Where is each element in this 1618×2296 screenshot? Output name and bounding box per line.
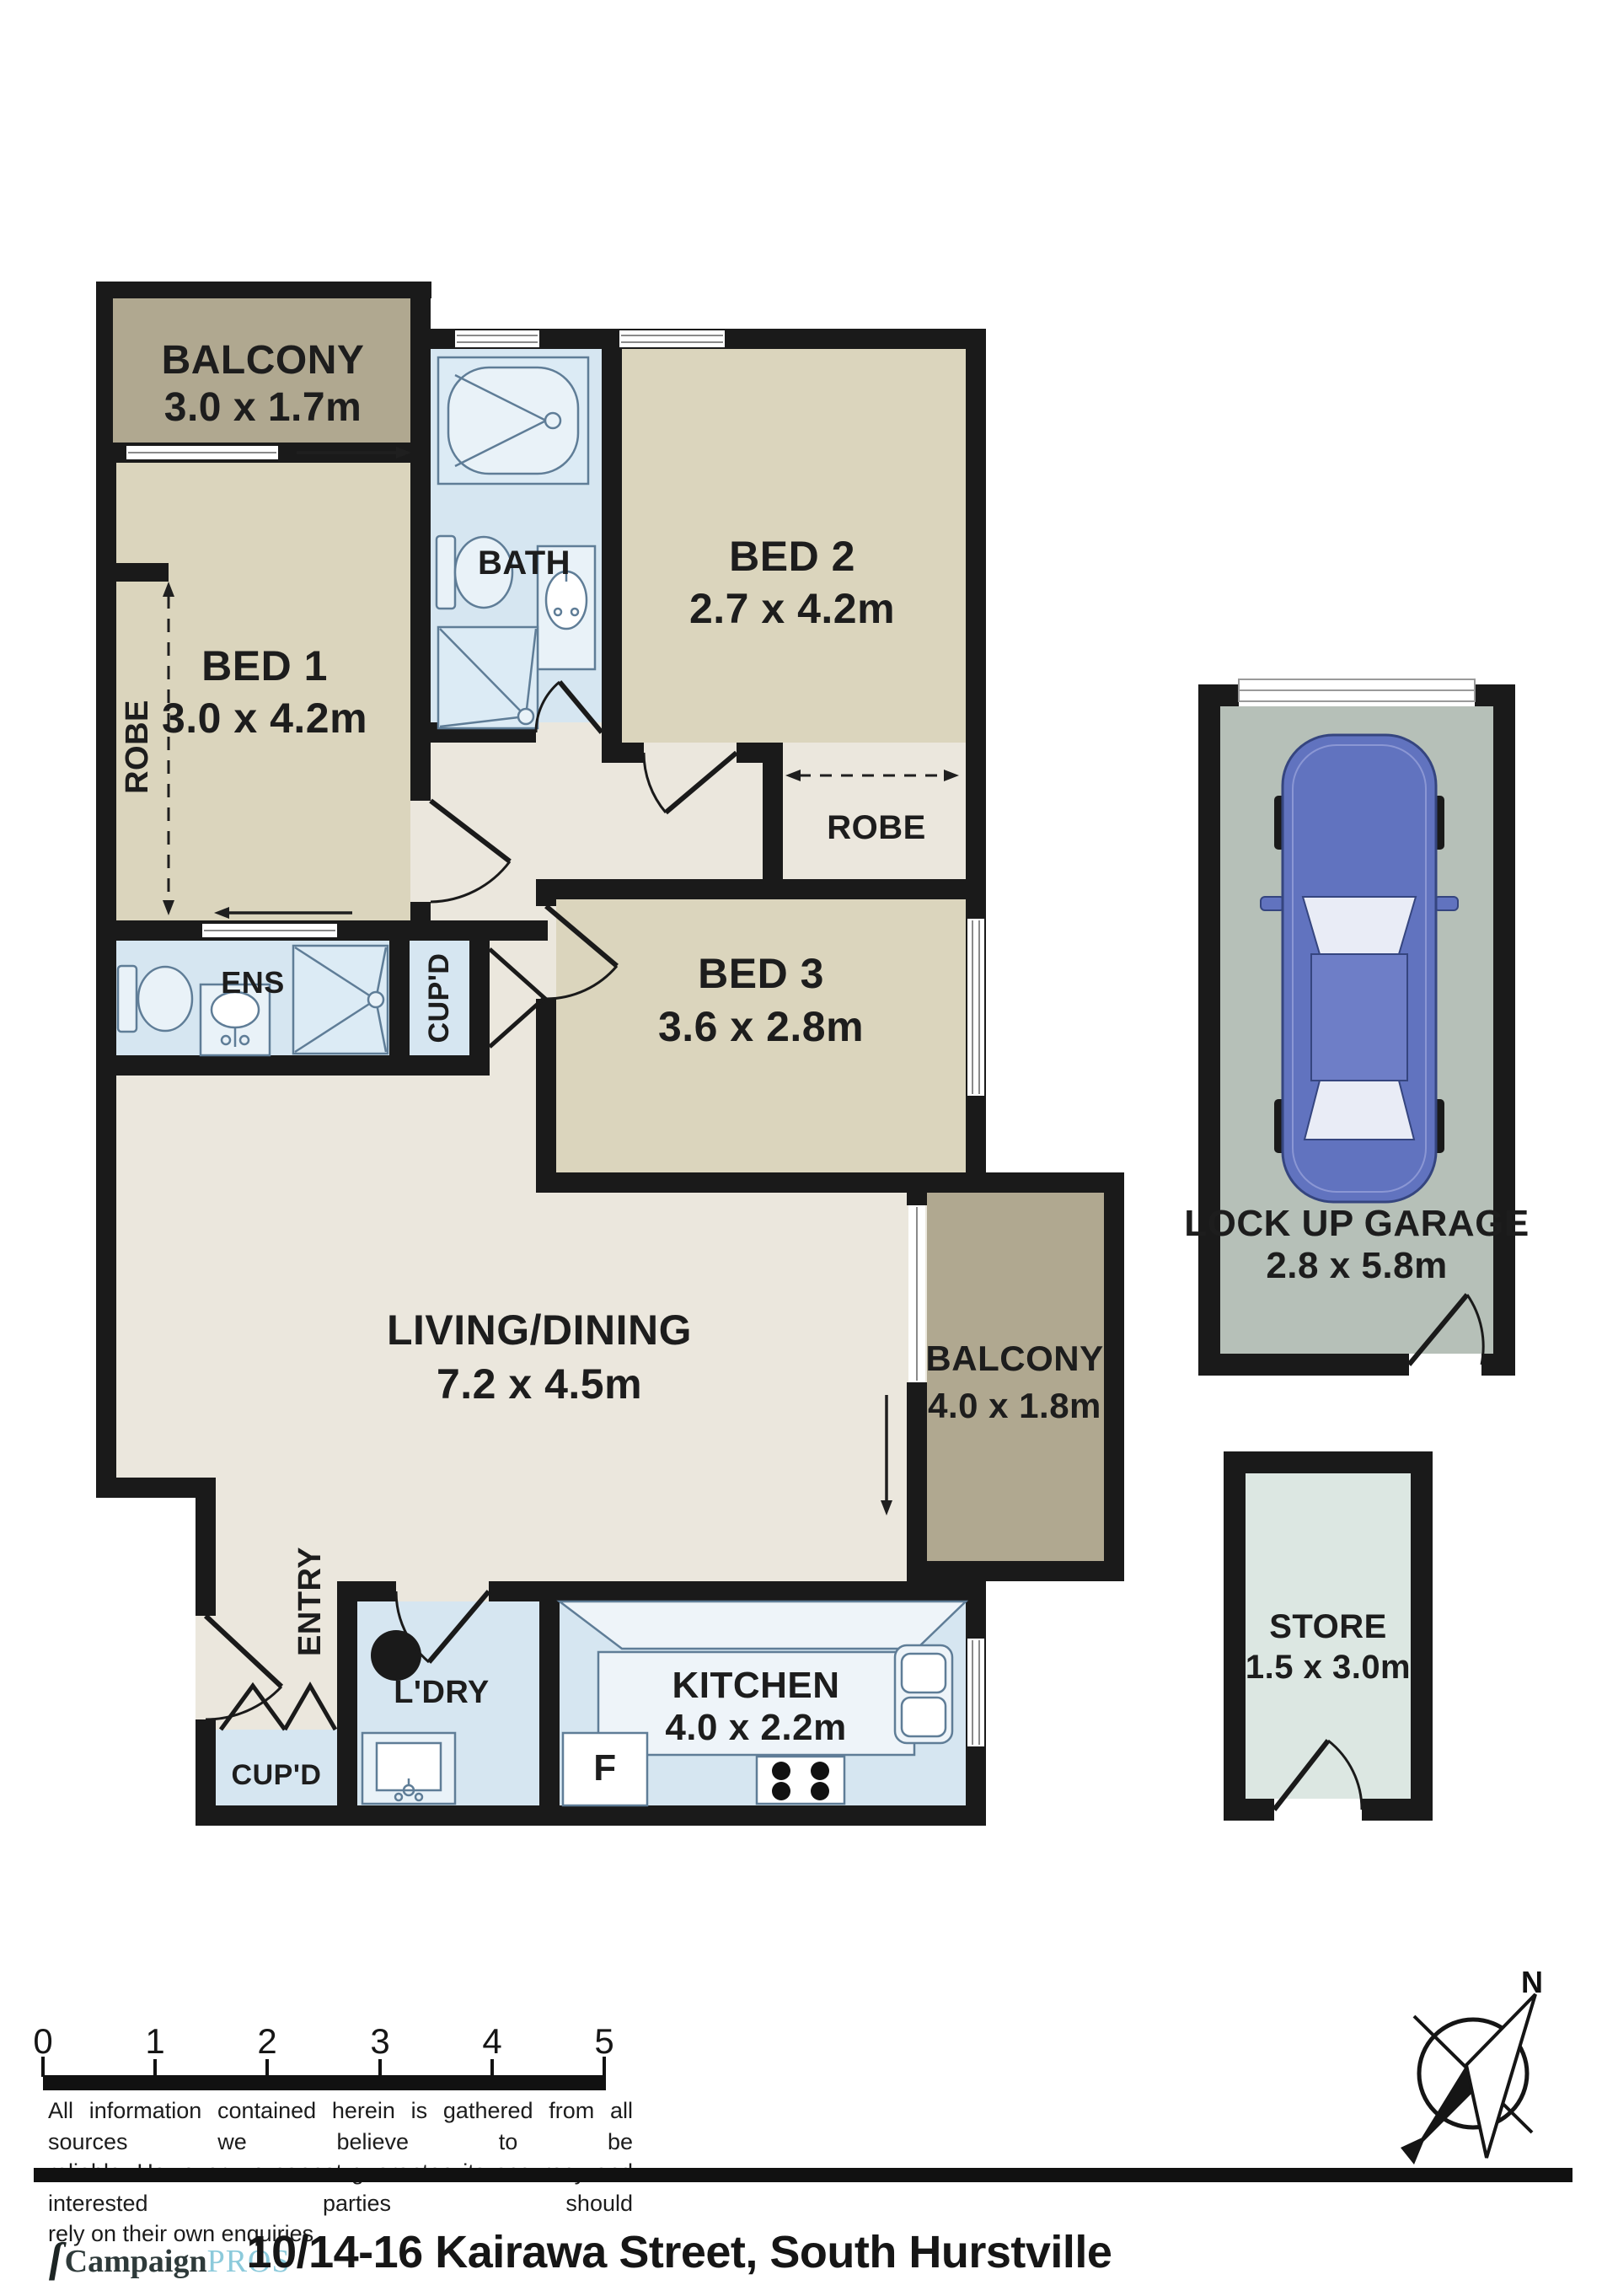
shower-icon [438, 627, 538, 728]
balcony2-label: BALCONY [925, 1341, 1103, 1376]
compass-north-label: N [1521, 1965, 1543, 2000]
logo-icon: ſ [49, 2234, 63, 2281]
bathtub-icon [438, 357, 588, 484]
scale-bar [41, 2057, 606, 2090]
garage-label: LOCK UP GARAGE [1184, 1205, 1530, 1242]
bed2-label: BED 2 [729, 535, 855, 577]
living-dining-dims: 7.2 x 4.5m [437, 1363, 642, 1405]
laundry-label: L'DRY [394, 1676, 490, 1709]
disclaimer-line: reliable. However we cannot guarantee it… [48, 2157, 633, 2218]
scale-0: 0 [33, 2021, 52, 2062]
balcony1-dims: 3.0 x 1.7m [164, 388, 362, 428]
floorplan-page: BALCONY 3.0 x 1.7m BED 1 3.0 x 4.2m ROBE… [0, 0, 1618, 2296]
garage-dims: 2.8 x 5.8m [1266, 1247, 1447, 1285]
bed2-dims: 2.7 x 4.2m [689, 587, 895, 630]
ens-shower-icon [293, 946, 388, 1054]
bed1-dims: 3.0 x 4.2m [162, 697, 367, 739]
garage-door [1239, 679, 1475, 701]
ens-toilet-icon [118, 966, 192, 1032]
scale-4: 4 [482, 2021, 501, 2062]
store-label: STORE [1269, 1610, 1387, 1644]
fridge-label: F [593, 1750, 616, 1787]
laundry-tub-icon [362, 1733, 455, 1804]
footer-divider [34, 2168, 1572, 2182]
cooktop-icon [757, 1757, 844, 1804]
entry-label: ENTRY [294, 1547, 326, 1656]
bed1-label: BED 1 [201, 645, 328, 687]
ensuite-label: ENS [221, 968, 285, 998]
bed3-dims: 3.6 x 2.8m [658, 1006, 864, 1048]
scale-3: 3 [370, 2021, 389, 2062]
address-title: 10/14-16 Kairawa Street, South Hurstvill… [247, 2226, 1112, 2278]
balcony1-label: BALCONY [162, 341, 365, 381]
kitchen-counter [560, 1601, 966, 1649]
bed3-label: BED 3 [698, 952, 824, 995]
scale-1: 1 [145, 2021, 164, 2062]
scale-5: 5 [594, 2021, 613, 2062]
compass-icon [1401, 1994, 1535, 2165]
kitchen-sink-icon [895, 1645, 952, 1743]
cupboard2-label: CUP'D [232, 1761, 322, 1789]
bath-label: BATH [478, 546, 571, 580]
kitchen-label: KITCHEN [672, 1667, 839, 1704]
disclaimer-line: All information contained herein is gath… [48, 2095, 633, 2157]
store-dims: 1.5 x 3.0m [1246, 1650, 1411, 1684]
scale-2: 2 [257, 2021, 276, 2062]
car-icon [1261, 735, 1458, 1202]
washer-icon [371, 1630, 421, 1681]
bed3-robe-label: ROBE [827, 811, 926, 845]
living-dining-label: LIVING/DINING [387, 1309, 692, 1351]
balcony2-dims: 4.0 x 1.8m [928, 1388, 1101, 1424]
bed1-robe-label: ROBE [121, 700, 153, 794]
logo-text-main: Campaign [65, 2244, 207, 2279]
kitchen-dims: 4.0 x 2.2m [665, 1709, 846, 1746]
cupboard1-label: CUP'D [425, 953, 453, 1043]
